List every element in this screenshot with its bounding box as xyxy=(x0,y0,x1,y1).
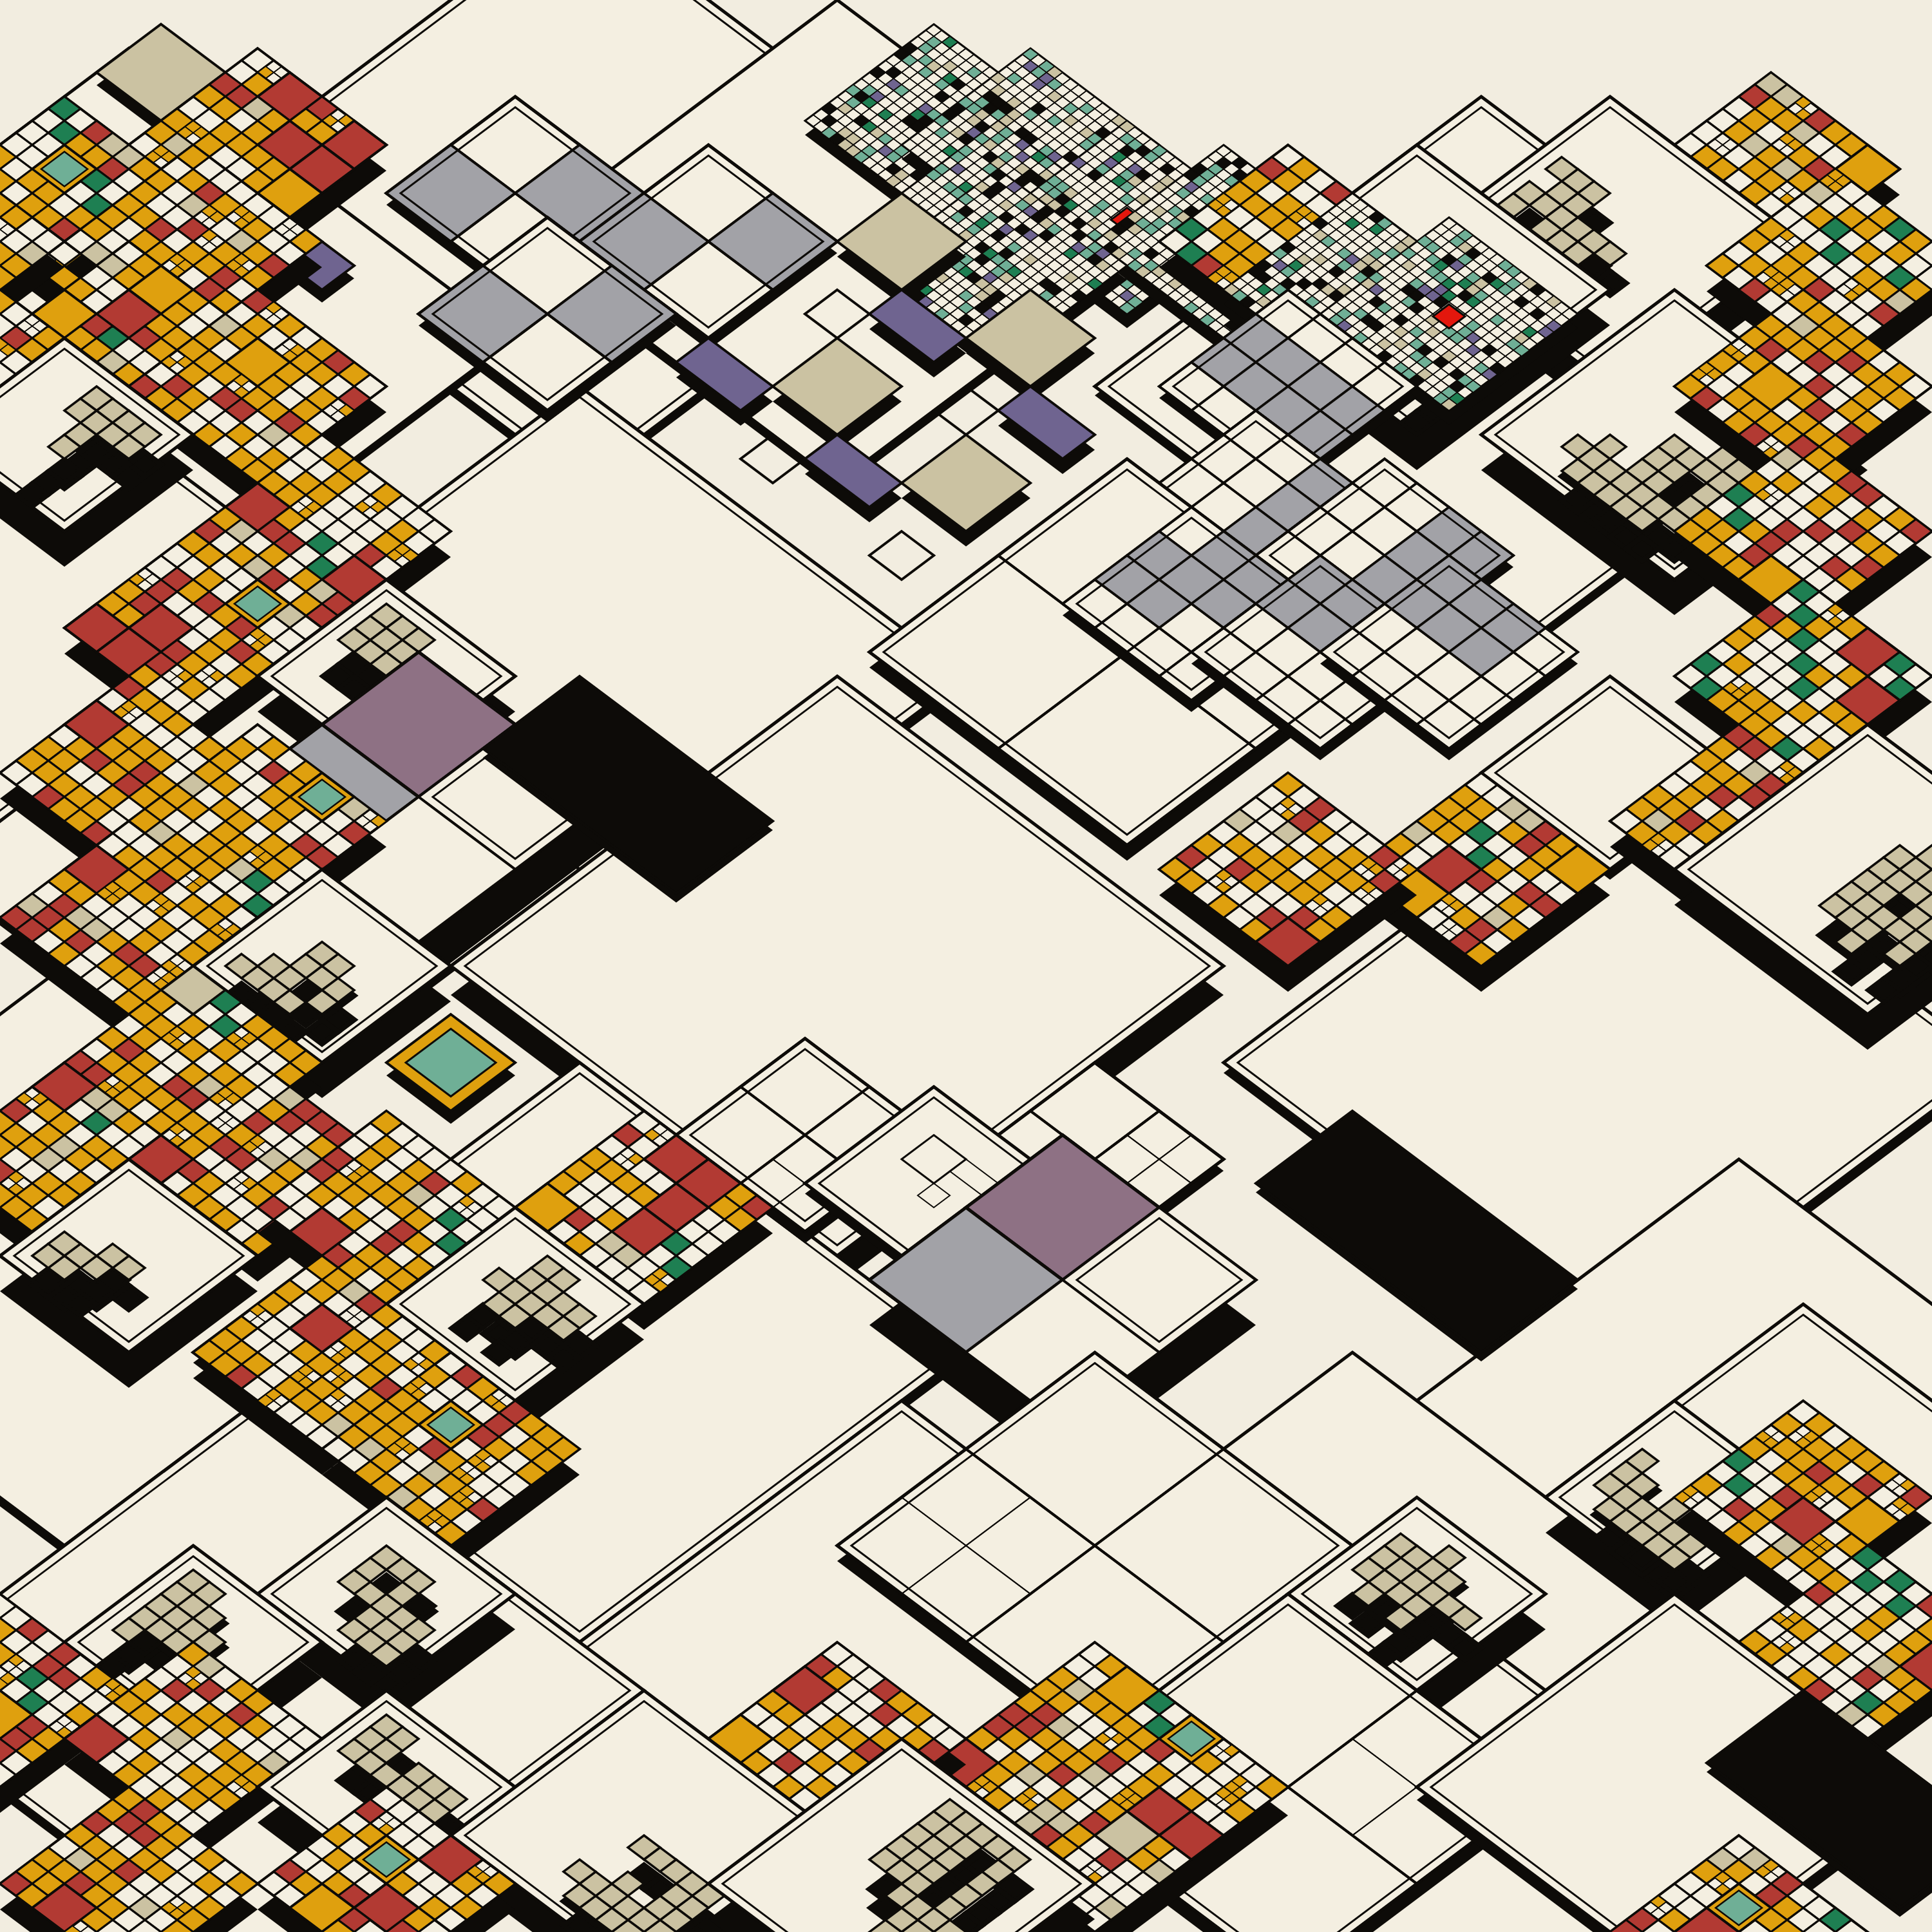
generative-artwork xyxy=(0,0,1932,1932)
artwork-stage xyxy=(0,0,1932,1932)
